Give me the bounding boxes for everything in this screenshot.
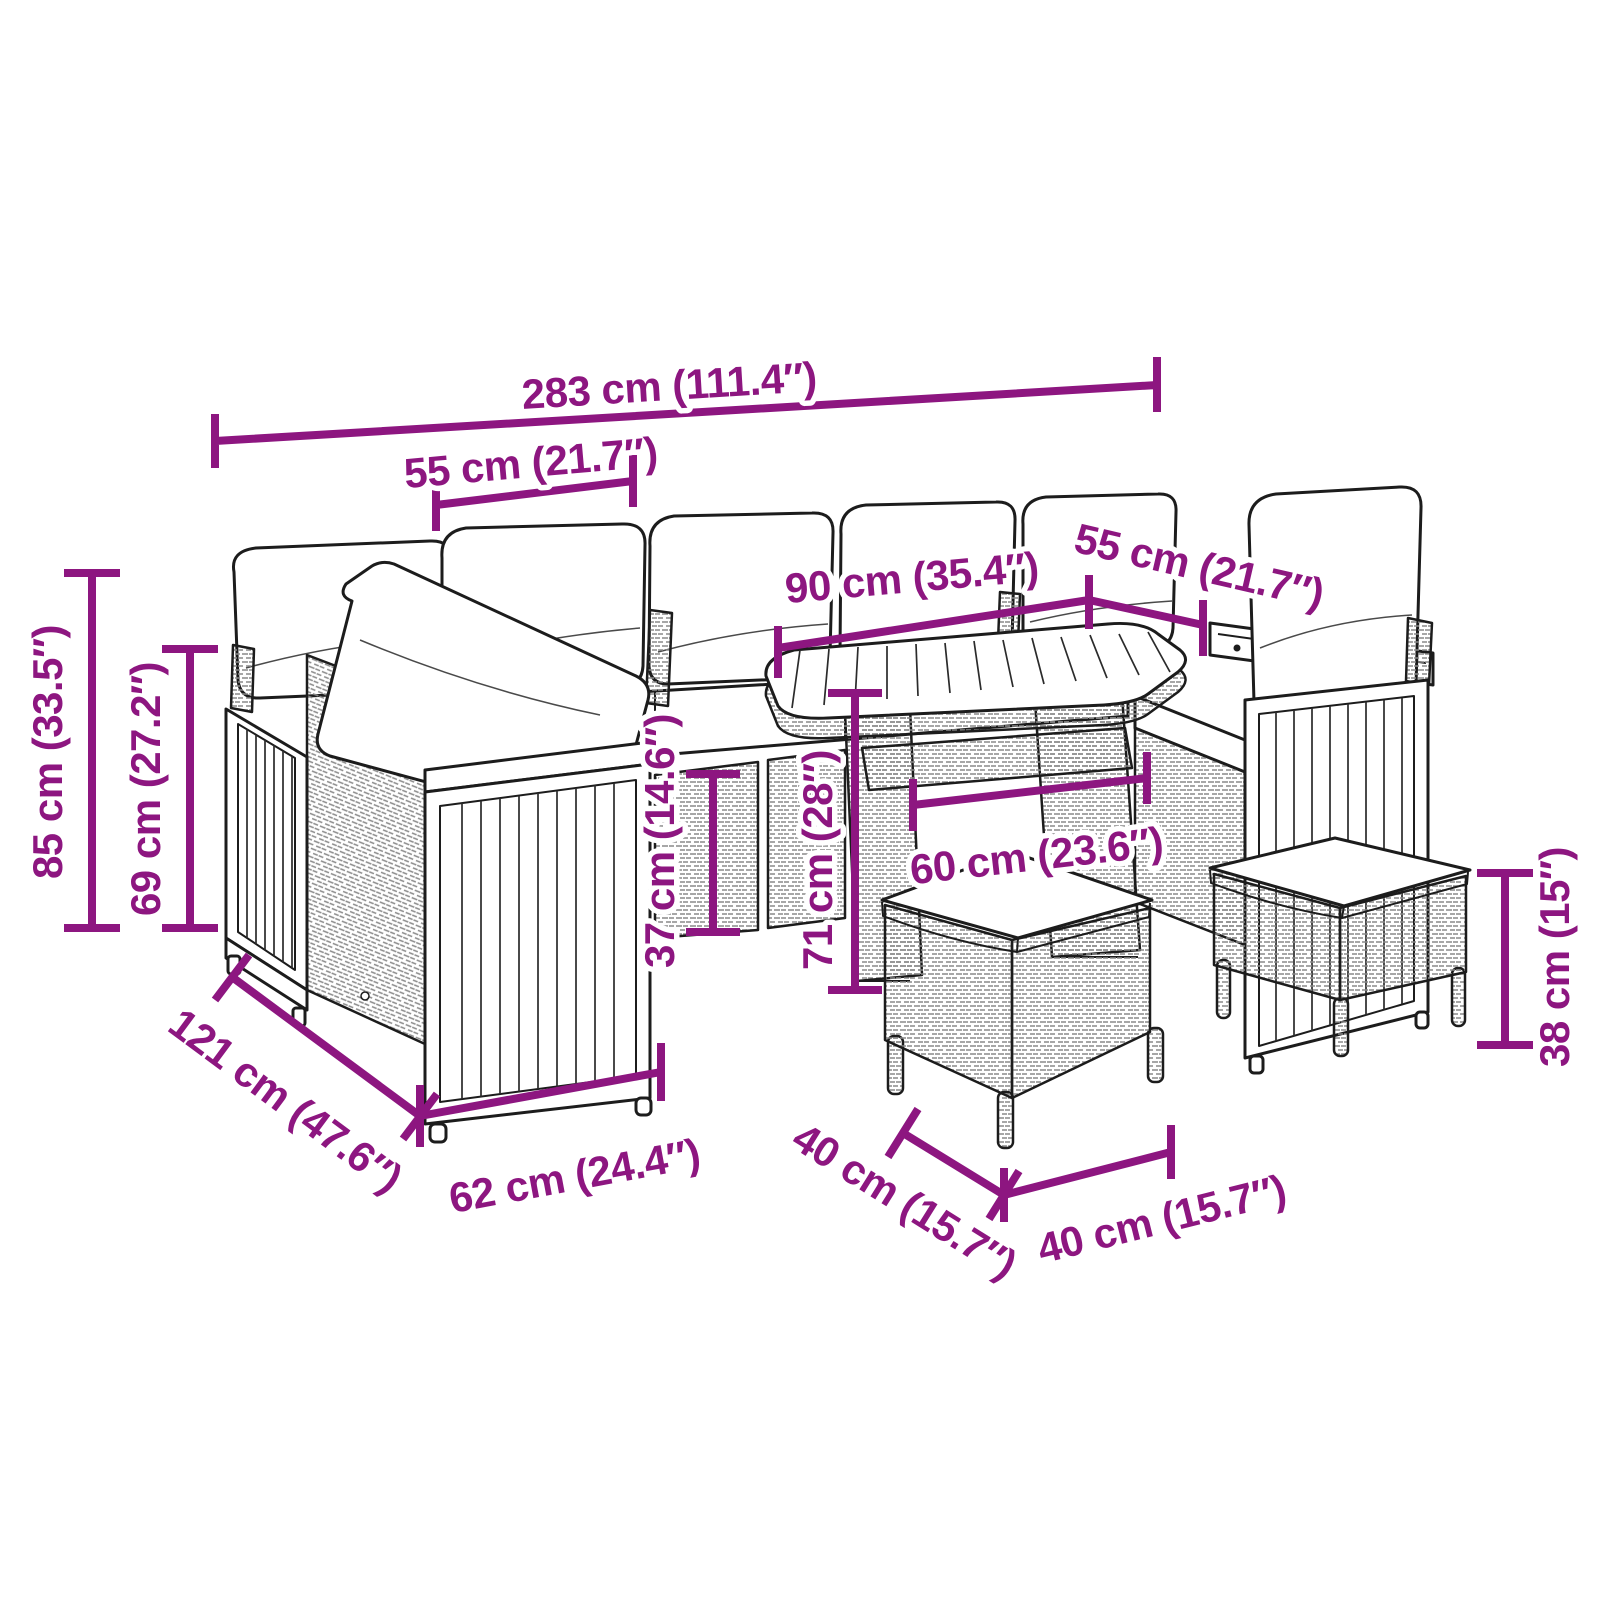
dim-total-height: 85 cm (33.5″) xyxy=(24,573,120,928)
dim-sofa-depth-label: 121 cm (47.6″) xyxy=(160,999,411,1202)
dim-module-width-left-label: 55 cm (21.7″) xyxy=(402,428,659,497)
stool-left xyxy=(882,852,1163,1148)
furniture-dimension-illustration: 283 cm (111.4″) 55 cm (21.7″) 90 cm (35.… xyxy=(0,0,1600,1600)
dim-module-depth-label: 62 cm (24.4″) xyxy=(445,1129,703,1222)
dim-stool-height-label: 38 cm (15″) xyxy=(1531,847,1578,1067)
dim-stool-depth: 40 cm (15.7″) xyxy=(784,1109,1024,1288)
dim-table-height-label: 71 cm (28″) xyxy=(794,750,841,970)
dim-stool-height: 38 cm (15″) xyxy=(1477,847,1578,1067)
dim-total-height-label: 85 cm (33.5″) xyxy=(24,625,71,879)
dim-seat-height-label: 37 cm (14.6″) xyxy=(636,714,683,968)
dim-total-width: 283 cm (111.4″) xyxy=(215,353,1157,468)
dim-backrest-height: 69 cm (27.2″) xyxy=(122,649,218,928)
cushion-strap xyxy=(1406,618,1432,685)
cushion-strap xyxy=(231,645,254,712)
dim-module-width-left: 55 cm (21.7″) xyxy=(402,428,659,531)
dim-stool-width: 40 cm (15.7″) xyxy=(1004,1125,1290,1272)
dim-stool-depth-label: 40 cm (15.7″) xyxy=(784,1113,1024,1288)
dimension-diagram: 283 cm (111.4″) 55 cm (21.7″) 90 cm (35.… xyxy=(0,0,1600,1600)
dim-backrest-height-label: 69 cm (27.2″) xyxy=(122,662,169,916)
